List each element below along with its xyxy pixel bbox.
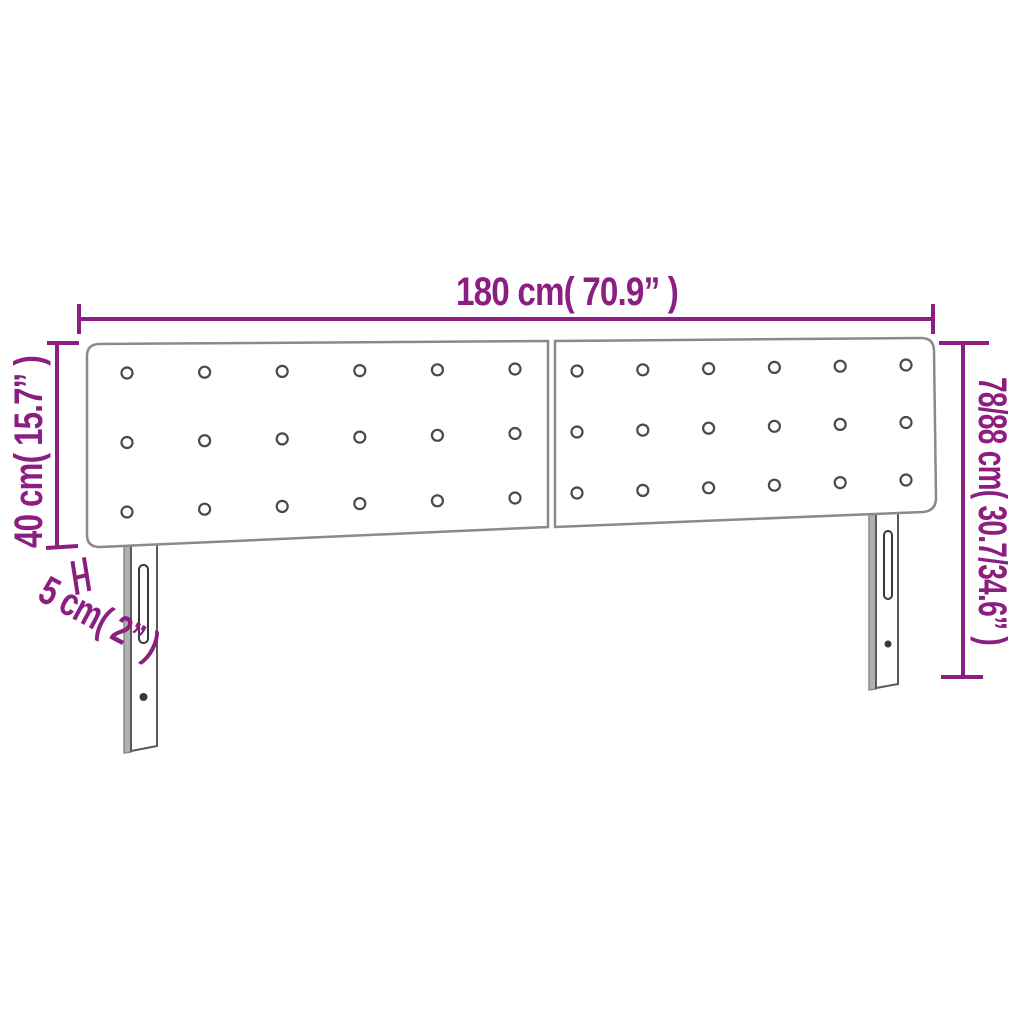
button-tuft [510,364,521,375]
button-tuft [901,360,912,371]
button-tuft [510,493,521,504]
button-tuft [510,428,521,439]
left-leg-screw-hole [140,693,148,701]
button-tuft [769,362,780,373]
button-tuft [637,364,648,375]
right-leg [869,512,898,690]
button-tuft [277,366,288,377]
button-tuft [901,475,912,486]
button-tuft [703,482,714,493]
button-tuft [835,477,846,488]
headboard-right-panel [555,338,936,527]
button-tuft [122,507,133,518]
button-tuft [572,366,583,377]
button-tuft [277,501,288,512]
headboard-left-panel [87,341,548,547]
button-tuft [572,427,583,438]
button-tuft [637,485,648,496]
button-tuft [354,365,365,376]
total-height-dimension-label: 78/88 cm( 30.7/34.6” ) [972,377,1012,645]
button-tuft [199,504,210,515]
width-dimension-label: 180 cm( 70.9” ) [456,272,678,312]
headboard-dimension-diagram: 180 cm( 70.9” ) 40 cm( 15.7” ) 5 cm( 2” … [0,0,1024,1024]
button-tuft [703,423,714,434]
button-tuft [354,432,365,443]
right-leg-screw-hole [885,641,892,648]
button-tuft [432,364,443,375]
button-tuft [277,433,288,444]
button-tuft [769,480,780,491]
button-tuft [769,421,780,432]
button-tuft [835,361,846,372]
right-leg-side [869,513,876,690]
button-tuft [432,430,443,441]
diagram-line-art [0,0,1024,1024]
button-tuft [122,368,133,379]
button-tuft [199,367,210,378]
right-leg-slot [884,531,892,599]
button-tuft [835,419,846,430]
button-tuft [199,435,210,446]
button-tuft [122,437,133,448]
button-tuft [354,498,365,509]
button-tuft [901,417,912,428]
button-tuft [637,425,648,436]
button-tuft [432,495,443,506]
button-tuft [703,363,714,374]
button-tuft [572,488,583,499]
height-dimension-label: 40 cm( 15.7” ) [9,356,49,548]
